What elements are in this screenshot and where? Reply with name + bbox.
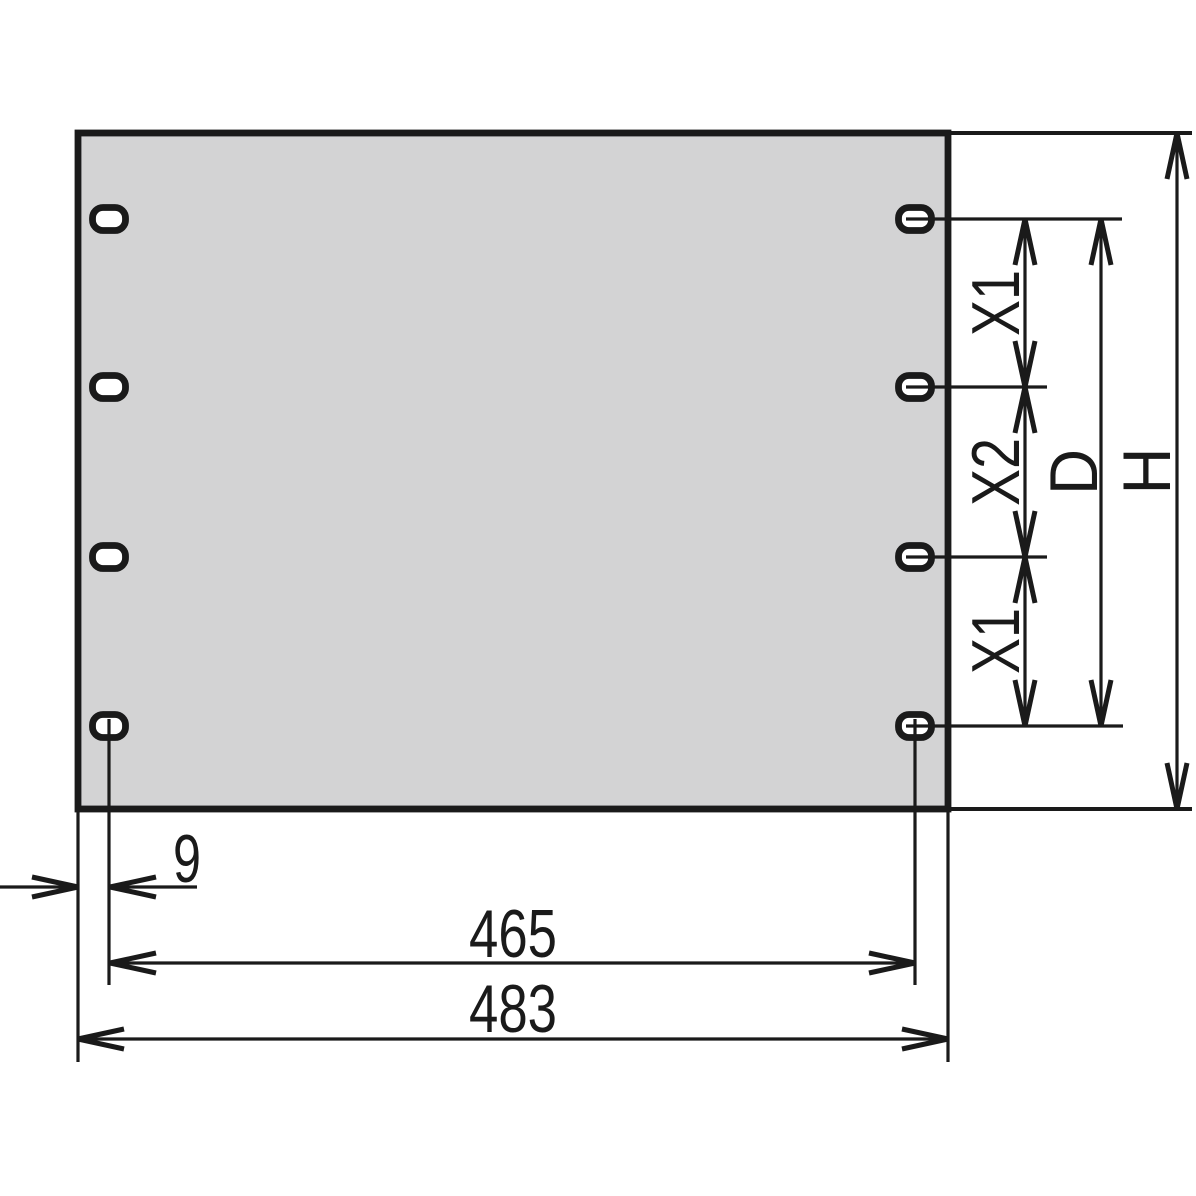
mounting-slot-left-row2 (93, 376, 126, 399)
rack-panel-dimension-drawing: 9 465 483 X1 X2 X1 D H (0, 0, 1196, 1196)
dim-label-pitch-top: X1 (958, 270, 1034, 336)
mounting-slot-left-row3 (93, 546, 126, 569)
dim-label-overall-width: 483 (469, 971, 557, 1047)
dim-label-overall-height: H (1109, 448, 1185, 495)
technical-drawing-canvas: 9 465 483 X1 X2 X1 D H (0, 0, 1196, 1196)
dim-label-edge-offset: 9 (173, 821, 201, 897)
mounting-slot-left-row1 (93, 208, 126, 231)
dim-label-hole-center-height: D (1036, 449, 1112, 495)
dim-label-pitch-bottom: X1 (958, 608, 1034, 674)
rack-panel-face (78, 133, 948, 809)
dim-label-pitch-middle: X2 (958, 438, 1034, 506)
dim-label-hole-center-width: 465 (469, 896, 557, 972)
